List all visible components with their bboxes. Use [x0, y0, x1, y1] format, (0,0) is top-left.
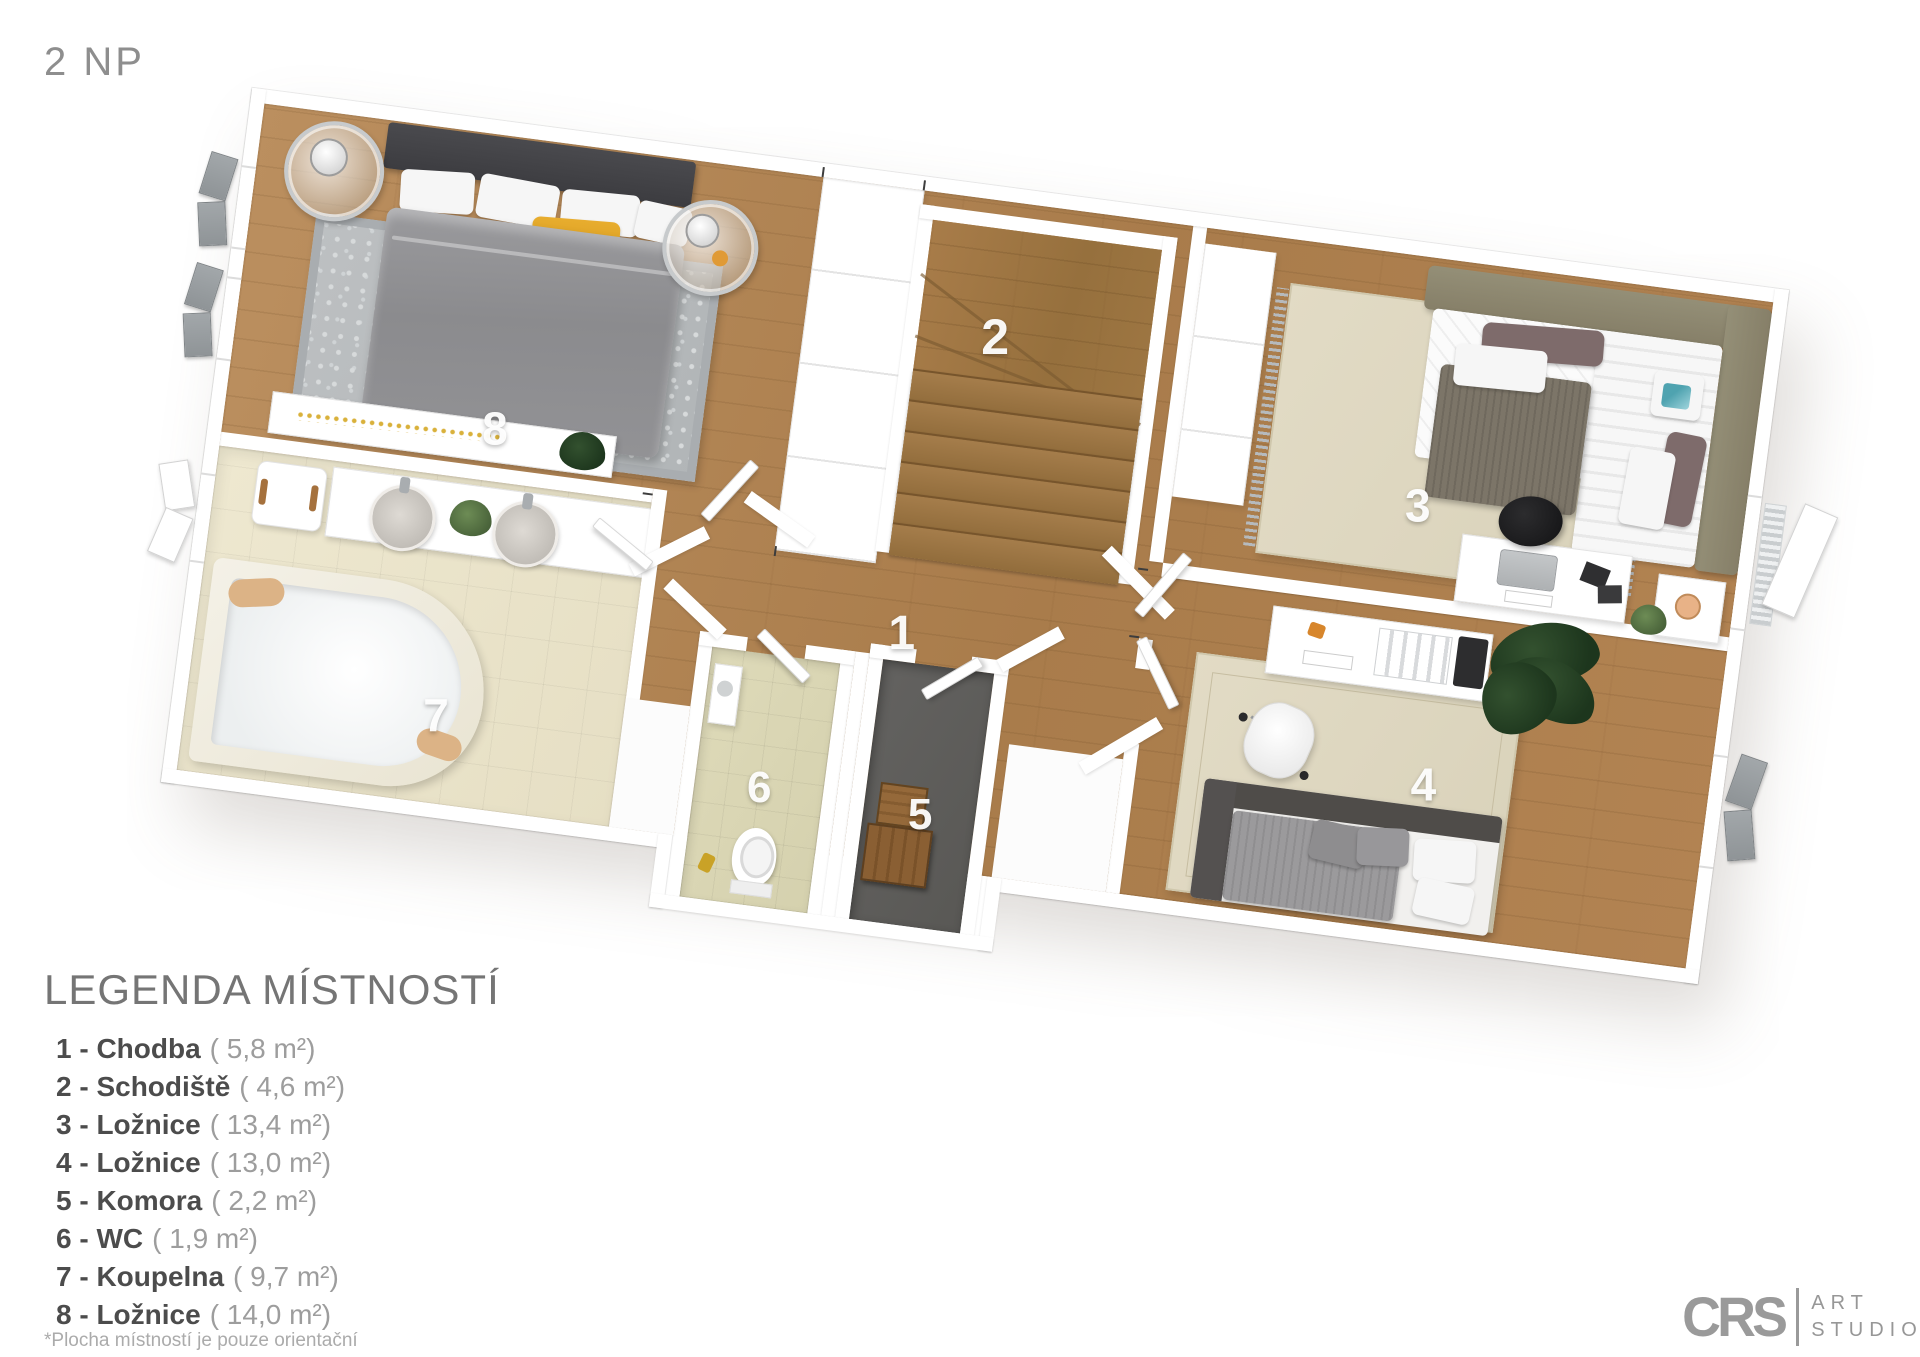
legend-title: LEGENDA MÍSTNOSTÍ [44, 966, 500, 1014]
teal-pillow-pattern [1661, 383, 1692, 410]
room-number-6: 6 [747, 763, 771, 813]
room-number-7: 7 [423, 688, 449, 742]
legend-item-label: 6 - WC [56, 1223, 143, 1255]
bed3-pillow [1453, 343, 1549, 394]
legend-item: 4 - Ložnice( 13,0 m²) [56, 1144, 500, 1182]
building-plan: 1 2 3 4 5 6 7 8 [161, 88, 1789, 984]
room-number-1: 1 [888, 606, 915, 661]
legend-item-area: ( 4,6 m²) [239, 1071, 345, 1103]
legend-item-label: 4 - Ložnice [56, 1147, 201, 1179]
legend-item-label: 5 - Komora [56, 1185, 202, 1217]
desk-photos [1598, 585, 1622, 603]
room-number-2: 2 [981, 308, 1009, 366]
shutter-icon [184, 262, 224, 312]
legend-item-area: ( 9,7 m²) [233, 1261, 339, 1293]
floor-label: 2 NP [44, 40, 145, 85]
logo-name-line1: ART [1811, 1290, 1920, 1317]
legend-item-area: ( 13,4 m²) [210, 1109, 331, 1141]
shutter-icon [199, 151, 239, 201]
logo-name-line2: STUDIO [1811, 1317, 1920, 1344]
legend-item-label: 7 - Koupelna [56, 1261, 224, 1293]
room-number-4: 4 [1411, 758, 1437, 812]
legend-item: 7 - Koupelna( 9,7 m²) [56, 1258, 500, 1296]
shutter-icon [197, 201, 227, 246]
legend-item-label: 8 - Ložnice [56, 1299, 201, 1331]
legend-item-label: 3 - Ložnice [56, 1109, 201, 1141]
faucet-icon [399, 477, 411, 494]
wall-block [992, 744, 1124, 892]
shutter-icon [1725, 754, 1768, 810]
studio-logo: CRS ART STUDIO [1680, 1284, 1920, 1349]
room-number-8: 8 [482, 401, 508, 455]
window-sash [158, 459, 195, 511]
bathtub-headrest [228, 577, 285, 607]
legend-item: 3 - Ložnice( 13,4 m²) [56, 1106, 500, 1144]
legend-item-area: ( 1,9 m²) [152, 1223, 258, 1255]
shutter-icon [183, 312, 213, 357]
bed8-pillow [399, 169, 475, 215]
staircase [889, 369, 1142, 584]
imac-icon [1496, 549, 1558, 592]
legend-item-area: ( 5,8 m²) [210, 1033, 316, 1065]
room-number-3: 3 [1405, 479, 1431, 533]
window-sash [147, 507, 194, 563]
legend: LEGENDA MÍSTNOSTÍ 1 - Chodba( 5,8 m²) 2 … [44, 966, 500, 1334]
file-organizers [1373, 628, 1453, 685]
legend-footnote: *Plocha místností je pouze orientační [44, 1330, 358, 1352]
legend-item: 5 - Komora( 2,2 m²) [56, 1182, 500, 1220]
legend-item: 2 - Schodiště( 4,6 m²) [56, 1068, 500, 1106]
logo-abbr: CRS [1682, 1284, 1784, 1349]
legend-item: 8 - Ložnice( 14,0 m²) [56, 1296, 500, 1334]
legend-item: 1 - Chodba( 5,8 m²) [56, 1030, 500, 1068]
legend-items: 1 - Chodba( 5,8 m²) 2 - Schodiště( 4,6 m… [56, 1030, 500, 1334]
faucet-icon [522, 493, 534, 510]
logo-divider [1796, 1288, 1799, 1346]
shutter-icon [1724, 809, 1756, 861]
bed4-grey-pillow [1356, 827, 1410, 867]
floor-plan-page: 2 NP [0, 0, 1920, 1357]
legend-item-label: 1 - Chodba [56, 1033, 201, 1065]
legend-item-area: ( 2,2 m²) [211, 1185, 317, 1217]
legend-item-label: 2 - Schodiště [56, 1071, 230, 1103]
legend-item-area: ( 14,0 m²) [210, 1299, 331, 1331]
legend-item-area: ( 13,0 m²) [210, 1147, 331, 1179]
legend-item: 6 - WC( 1,9 m²) [56, 1220, 500, 1258]
room-number-5: 5 [908, 790, 932, 840]
